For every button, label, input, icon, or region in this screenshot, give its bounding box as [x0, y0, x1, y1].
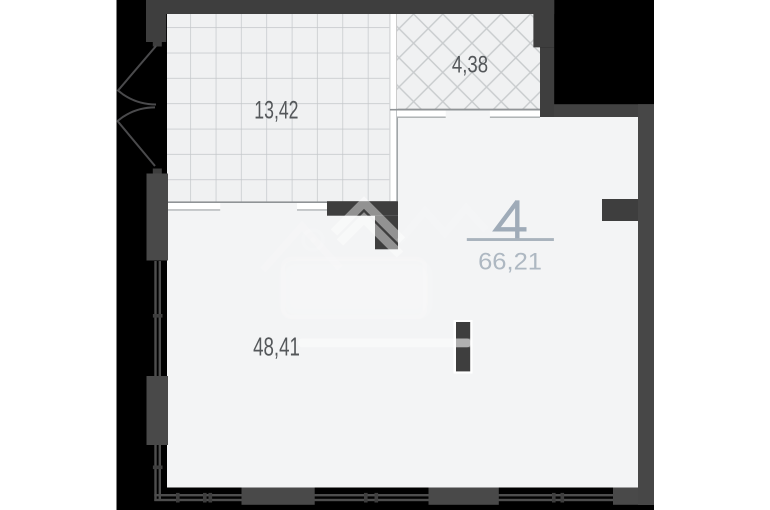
svg-text:48,41: 48,41: [253, 333, 300, 361]
svg-text:66,21: 66,21: [478, 249, 542, 276]
svg-text:13,42: 13,42: [254, 97, 298, 125]
svg-text:4,38: 4,38: [452, 52, 488, 79]
